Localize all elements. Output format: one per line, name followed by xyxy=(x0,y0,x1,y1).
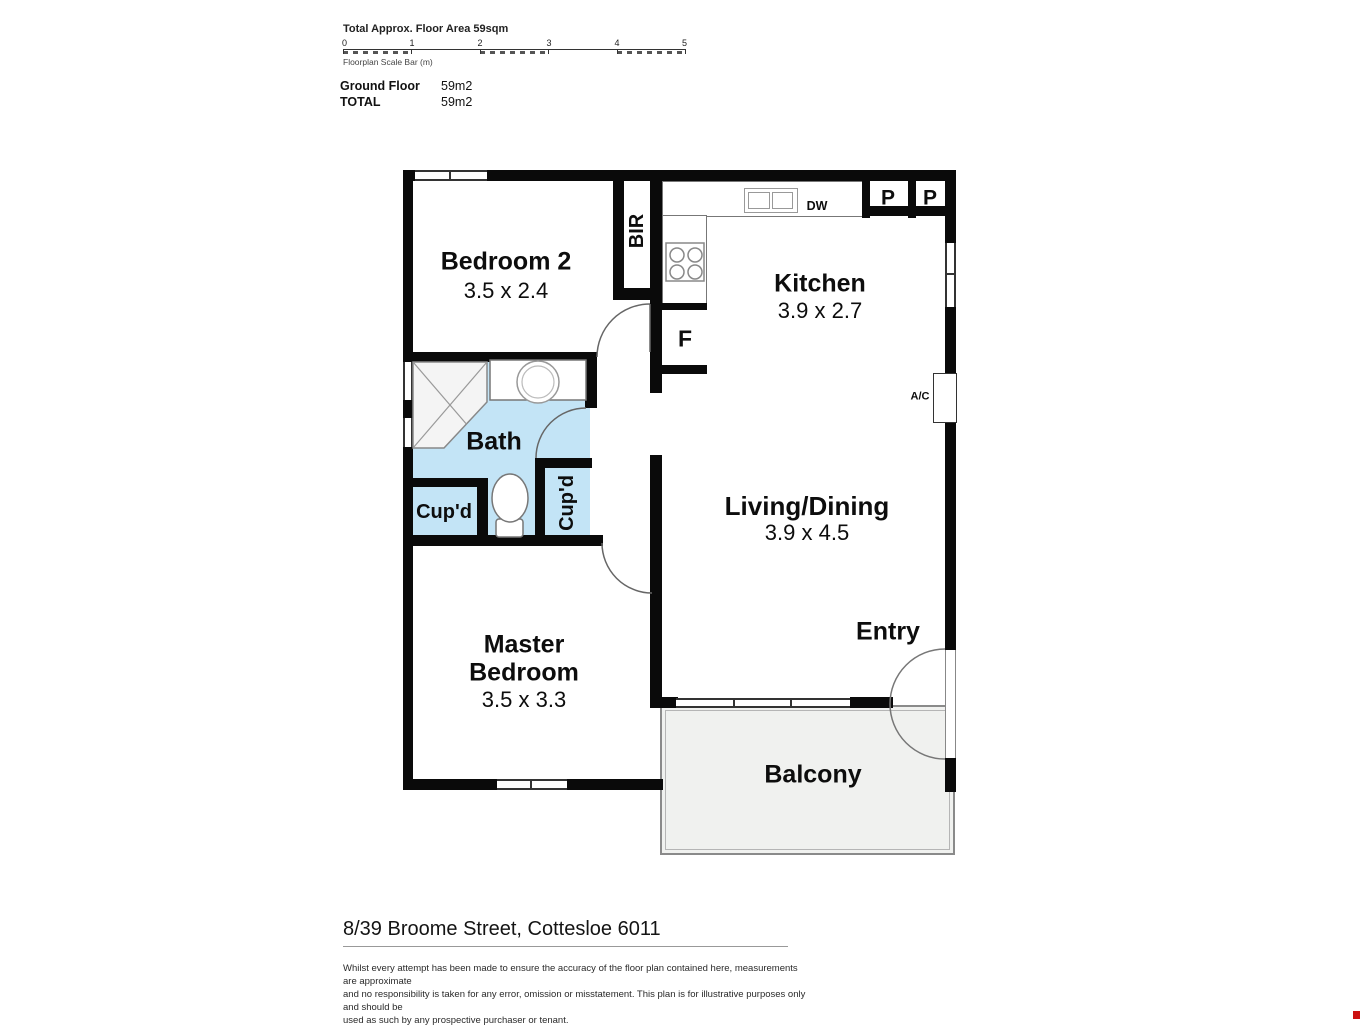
sink-bowl xyxy=(748,192,770,209)
sink-bowl xyxy=(772,192,793,209)
wall-living-left xyxy=(650,455,662,708)
master-label-line1: Master xyxy=(484,633,565,658)
window-divider xyxy=(790,700,792,706)
wall-balcony-top-left xyxy=(650,697,678,708)
ac-label: A/C xyxy=(911,392,930,403)
address-title: 8/39 Broome Street, Cottesloe 6011 xyxy=(343,918,661,941)
wall-vanity-right xyxy=(585,352,597,408)
entry-door-opening xyxy=(945,650,956,758)
wall-cupboard1-top xyxy=(403,478,488,487)
window-bath-upper xyxy=(403,362,413,400)
balcony-label: Balcony xyxy=(764,763,861,788)
red-watermark xyxy=(1353,1011,1360,1019)
bedroom2-label: Bedroom 2 xyxy=(441,250,572,275)
wall-counter-end xyxy=(662,303,707,310)
bedroom2-dims: 3.5 x 2.4 xyxy=(464,280,548,302)
window-master xyxy=(497,779,567,790)
living-label: Living/Dining xyxy=(725,493,890,519)
window-bath-lower xyxy=(403,418,413,447)
disclaimer-line: and no responsibility is taken for any e… xyxy=(343,988,813,1014)
kitchen-counter-left xyxy=(662,215,707,305)
master-door-arc xyxy=(602,543,652,593)
master-label-line2: Bedroom xyxy=(469,661,579,686)
wall-bath-master xyxy=(403,535,603,546)
floorplan: Bedroom 2 3.5 x 2.4 BIR Kitchen 3.9 x 2.… xyxy=(0,0,1360,1020)
ac-unit xyxy=(933,373,957,423)
living-dims: 3.9 x 4.5 xyxy=(765,522,849,544)
wall-fridge-stub xyxy=(662,365,707,374)
pantry1-label: P xyxy=(881,188,895,209)
disclaimer-line: Whilst every attempt has been made to en… xyxy=(343,962,813,988)
window-bedroom2 xyxy=(415,170,487,181)
cupboard2-label: Cup'd xyxy=(557,475,577,531)
kitchen-label: Kitchen xyxy=(774,272,866,297)
wall-bir-left xyxy=(613,170,624,300)
entry-label: Entry xyxy=(856,620,920,645)
wall-right-lower-stub xyxy=(945,758,956,792)
bath-label: Bath xyxy=(466,430,522,455)
window-divider xyxy=(947,273,954,275)
wall-hall-upper xyxy=(650,170,662,393)
kitchen-sink-icon xyxy=(744,188,798,213)
pantry2-label: P xyxy=(923,188,937,209)
wall-pantry-bottom xyxy=(862,206,956,216)
wall-balcony-top-right xyxy=(850,697,893,708)
footer-divider xyxy=(343,946,788,947)
dishwasher-label: DW xyxy=(807,200,828,213)
disclaimer: Whilst every attempt has been made to en… xyxy=(343,962,813,1027)
window-divider xyxy=(530,781,532,788)
window-balcony-sliding xyxy=(676,698,850,708)
fridge-label: F xyxy=(678,328,692,351)
window-divider xyxy=(449,172,451,179)
window-kitchen xyxy=(945,243,956,307)
wall-bedroom2-bottom xyxy=(403,352,597,362)
kitchen-dims: 3.9 x 2.7 xyxy=(778,300,862,322)
window-divider xyxy=(733,700,735,706)
bir-label: BIR xyxy=(627,214,647,248)
master-dims: 3.5 x 3.3 xyxy=(482,689,566,711)
plan-fixtures-layer xyxy=(0,0,1360,1020)
bedroom2-door-arc xyxy=(597,304,650,357)
cupboard1-label: Cup'd xyxy=(416,502,472,522)
disclaimer-line: used as such by any prospective purchase… xyxy=(343,1014,813,1027)
wall-cupboard2-top xyxy=(535,458,592,468)
floorplan-page: { "header": { "total_area_label": "Total… xyxy=(0,0,1360,1020)
